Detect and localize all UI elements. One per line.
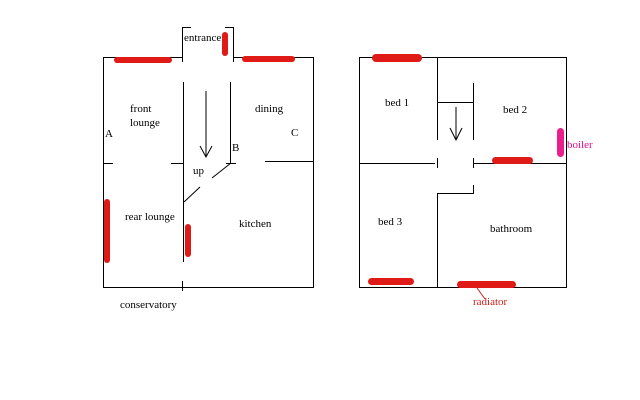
- annotation-lines: [0, 0, 640, 400]
- stair-diagonal: [184, 187, 200, 202]
- radiator-leader-line: [477, 288, 485, 299]
- floor-plan-drawing: entrance front lounge A dining C B up re…: [0, 0, 640, 400]
- stair-diagonal: [212, 163, 231, 178]
